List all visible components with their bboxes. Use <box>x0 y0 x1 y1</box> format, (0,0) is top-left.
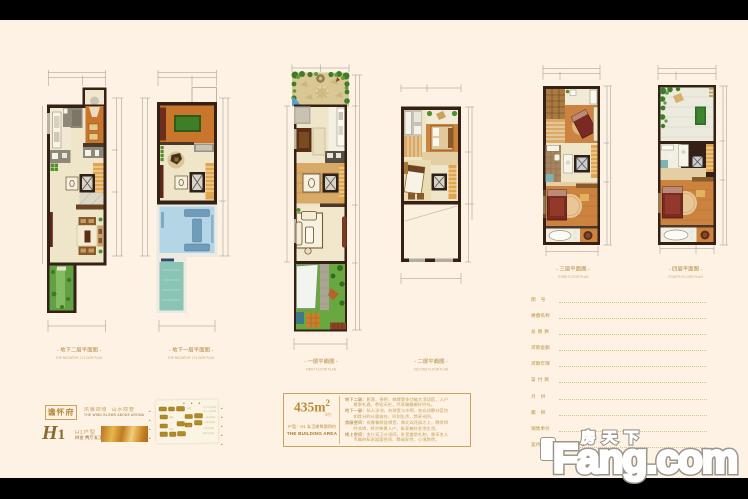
svg-text:床具: 床具 <box>169 416 173 419</box>
svg-text:- 四层平面图 -: - 四层平面图 - <box>669 266 703 273</box>
svg-text:沙发: 沙发 <box>169 428 173 431</box>
svg-text:地下二层家具: 地下二层家具 <box>203 406 217 409</box>
svg-text:- 一层平面图 -: - 一层平面图 - <box>304 358 338 365</box>
svg-text:二层家具表: 二层家具表 <box>204 421 216 424</box>
svg-text:SECOND FLOOR PLAN: SECOND FLOOR PLAN <box>414 368 449 372</box>
svg-text:THE NEGATIVE 2 FLOOR PLAN: THE NEGATIVE 2 FLOOR PLAN <box>56 356 104 360</box>
svg-text:一层家具表: 一层家具表 <box>204 416 216 419</box>
svg-text:THIRD FLOOR PLAN: THIRD FLOOR PLAN <box>558 275 590 279</box>
svg-text:THE NEGATIVE 1 FLOOR PLAN: THE NEGATIVE 1 FLOOR PLAN <box>168 356 216 360</box>
svg-text:- 地下二层平面图 -: - 地下二层平面图 - <box>57 347 102 354</box>
svg-text:- 三层平面图 -: - 三层平面图 - <box>556 266 590 273</box>
svg-text:Fang.com: Fang.com <box>553 436 737 482</box>
svg-text:桌椅: 桌椅 <box>187 425 191 428</box>
svg-text:FOURTH FLOOR PLAN: FOURTH FLOOR PLAN <box>668 275 703 279</box>
svg-text:四层家具表: 四层家具表 <box>203 432 215 435</box>
svg-text:- 二层平面图 -: - 二层平面图 - <box>414 358 448 365</box>
svg-text:地下一层家具: 地下一层家具 <box>203 410 217 413</box>
svg-text:三层家具表: 三层家具表 <box>203 427 215 430</box>
svg-text:衣柜: 衣柜 <box>187 407 191 410</box>
svg-text:- 地下一层平面图 -: - 地下一层平面图 - <box>169 347 214 354</box>
svg-text:FIRST FLOOR PLAN: FIRST FLOOR PLAN <box>306 368 337 372</box>
